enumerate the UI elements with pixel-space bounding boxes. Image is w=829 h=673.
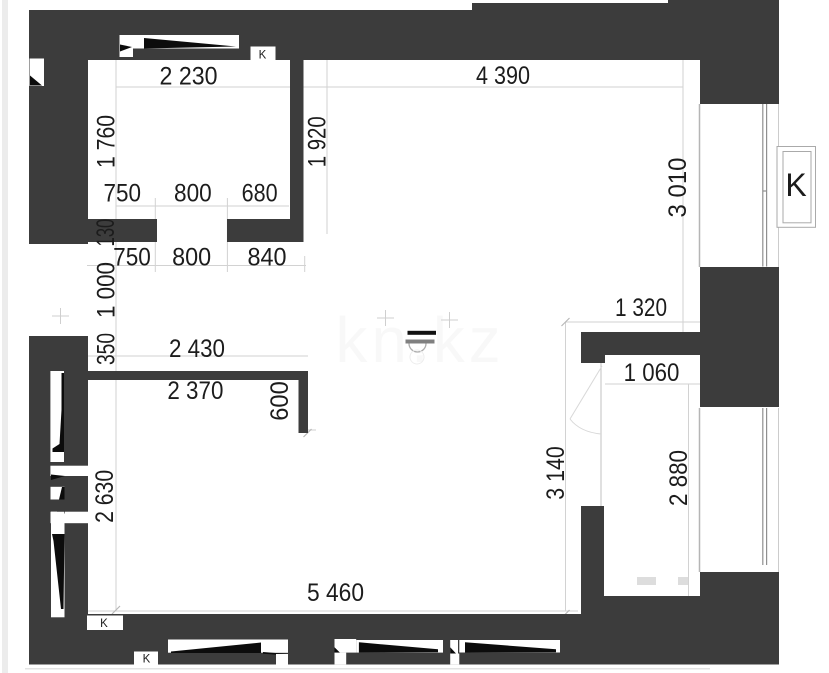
svg-text:1 760: 1 760 [92, 115, 120, 168]
svg-text:2 370: 2 370 [167, 377, 223, 405]
svg-text:1 060: 1 060 [624, 359, 680, 387]
svg-text:1 320: 1 320 [615, 294, 667, 322]
svg-text:800: 800 [174, 180, 212, 208]
svg-text:K: K [785, 167, 806, 203]
svg-text:130: 130 [92, 219, 120, 247]
svg-text:350: 350 [92, 333, 120, 365]
svg-text:2 430: 2 430 [169, 335, 225, 363]
svg-text:680: 680 [242, 180, 278, 208]
svg-text:K: K [143, 653, 151, 665]
svg-text:750: 750 [104, 180, 142, 208]
svg-text:K: K [259, 50, 267, 62]
svg-text:5 460: 5 460 [307, 579, 364, 607]
svg-text:K: K [100, 618, 108, 630]
svg-text:2 230: 2 230 [160, 62, 218, 90]
svg-text:800: 800 [172, 244, 211, 272]
svg-text:1 000: 1 000 [92, 262, 120, 318]
svg-text:4 390: 4 390 [476, 62, 530, 90]
svg-text:2 630: 2 630 [91, 470, 119, 523]
svg-text:3 140: 3 140 [542, 446, 570, 500]
svg-text:1 920: 1 920 [304, 116, 332, 167]
svg-text:3 010: 3 010 [664, 158, 692, 218]
svg-text:840: 840 [248, 244, 287, 272]
svg-text:2 880: 2 880 [665, 450, 693, 506]
svg-text:600: 600 [266, 381, 294, 421]
